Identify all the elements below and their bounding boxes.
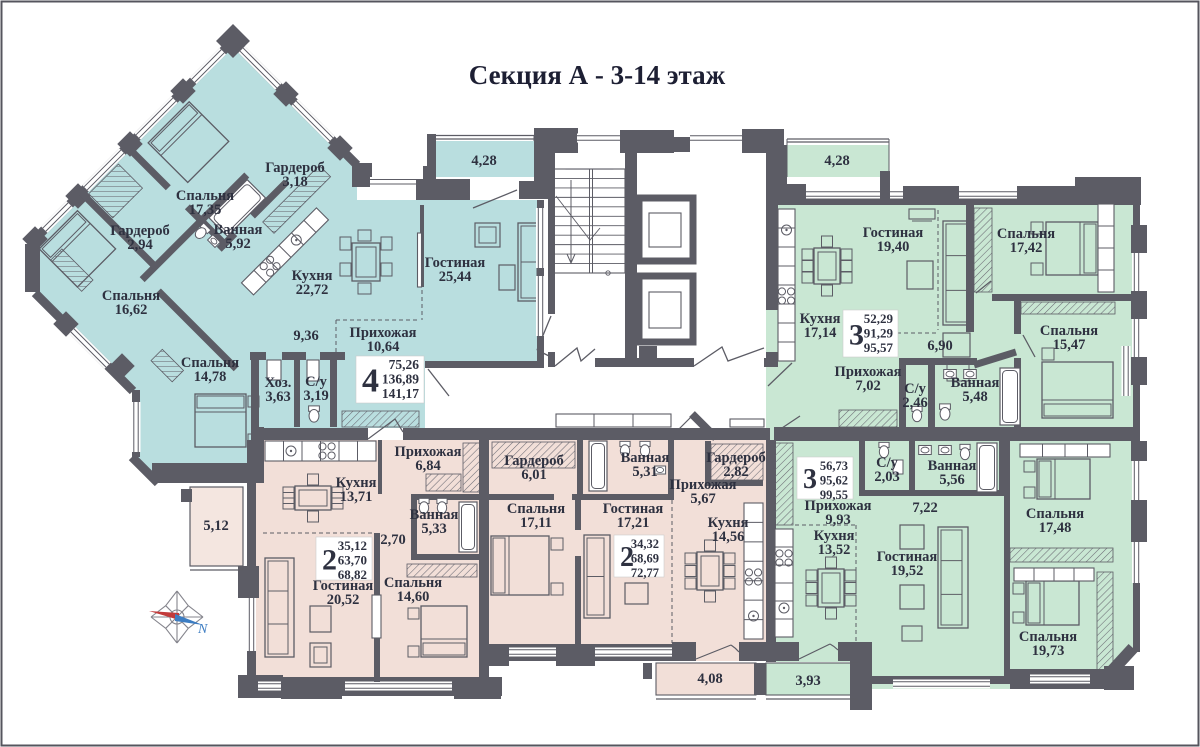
- svg-text:17,21: 17,21: [617, 515, 650, 531]
- svg-text:68,82: 68,82: [338, 567, 367, 582]
- svg-text:13,71: 13,71: [340, 489, 373, 505]
- svg-text:136,89: 136,89: [382, 372, 419, 387]
- svg-text:6,84: 6,84: [415, 458, 440, 474]
- svg-text:19,73: 19,73: [1032, 643, 1065, 659]
- svg-text:9,93: 9,93: [825, 512, 850, 528]
- svg-text:2,46: 2,46: [902, 395, 927, 411]
- svg-text:17,14: 17,14: [804, 325, 837, 341]
- svg-text:N: N: [197, 622, 208, 637]
- svg-text:10,64: 10,64: [367, 339, 400, 355]
- svg-text:75,26: 75,26: [389, 357, 420, 372]
- svg-text:6,01: 6,01: [521, 467, 546, 483]
- svg-text:34,32: 34,32: [631, 537, 659, 551]
- svg-text:3: 3: [803, 464, 817, 495]
- svg-text:95,62: 95,62: [820, 474, 848, 488]
- svg-text:4: 4: [362, 363, 379, 400]
- svg-text:6,90: 6,90: [927, 338, 952, 354]
- svg-text:2,70: 2,70: [380, 532, 405, 548]
- svg-text:141,17: 141,17: [382, 386, 419, 401]
- svg-text:52,29: 52,29: [864, 311, 894, 326]
- svg-text:14,56: 14,56: [712, 529, 745, 545]
- svg-text:17,11: 17,11: [520, 515, 552, 531]
- svg-text:4,28: 4,28: [471, 153, 496, 169]
- svg-text:5,31: 5,31: [632, 464, 657, 480]
- svg-text:3,18: 3,18: [282, 174, 307, 190]
- svg-text:5,56: 5,56: [939, 472, 964, 488]
- svg-text:99,55: 99,55: [820, 488, 848, 502]
- svg-text:4,08: 4,08: [697, 671, 722, 687]
- svg-text:91,29: 91,29: [864, 326, 894, 341]
- svg-text:25,44: 25,44: [439, 269, 472, 285]
- svg-text:35,12: 35,12: [338, 538, 367, 553]
- svg-text:3,63: 3,63: [265, 389, 290, 405]
- svg-text:17,48: 17,48: [1039, 520, 1072, 536]
- svg-text:14,78: 14,78: [194, 369, 227, 385]
- svg-text:15,47: 15,47: [1053, 337, 1086, 353]
- svg-text:5,12: 5,12: [203, 518, 228, 534]
- svg-text:3: 3: [849, 318, 864, 351]
- svg-text:4,28: 4,28: [824, 153, 849, 169]
- svg-text:2,94: 2,94: [127, 237, 152, 253]
- svg-text:95,57: 95,57: [864, 340, 894, 355]
- svg-text:20,52: 20,52: [327, 592, 360, 608]
- svg-text:72,77: 72,77: [631, 566, 659, 580]
- svg-text:3,19: 3,19: [303, 388, 328, 404]
- svg-text:19,40: 19,40: [877, 239, 910, 255]
- svg-text:2,03: 2,03: [874, 469, 899, 485]
- svg-text:22,72: 22,72: [296, 282, 329, 298]
- svg-text:3,93: 3,93: [795, 673, 820, 689]
- svg-text:17,42: 17,42: [1010, 240, 1043, 256]
- svg-text:5,33: 5,33: [421, 521, 446, 537]
- svg-text:14,60: 14,60: [397, 589, 430, 605]
- svg-text:68,69: 68,69: [631, 552, 659, 566]
- svg-text:9,36: 9,36: [293, 328, 318, 344]
- svg-text:5,67: 5,67: [690, 491, 715, 507]
- svg-text:7,22: 7,22: [912, 500, 937, 516]
- svg-text:Секция А - 3-14 этаж: Секция А - 3-14 этаж: [469, 60, 726, 90]
- svg-text:16,62: 16,62: [115, 302, 148, 318]
- svg-text:13,52: 13,52: [818, 542, 851, 558]
- svg-text:5,92: 5,92: [225, 236, 250, 252]
- svg-text:63,70: 63,70: [338, 553, 367, 568]
- svg-text:19,52: 19,52: [891, 563, 924, 579]
- svg-text:17,35: 17,35: [189, 202, 222, 218]
- svg-text:7,02: 7,02: [855, 378, 880, 394]
- svg-text:2: 2: [322, 543, 337, 576]
- svg-text:56,73: 56,73: [820, 459, 848, 473]
- svg-text:5,48: 5,48: [962, 389, 987, 405]
